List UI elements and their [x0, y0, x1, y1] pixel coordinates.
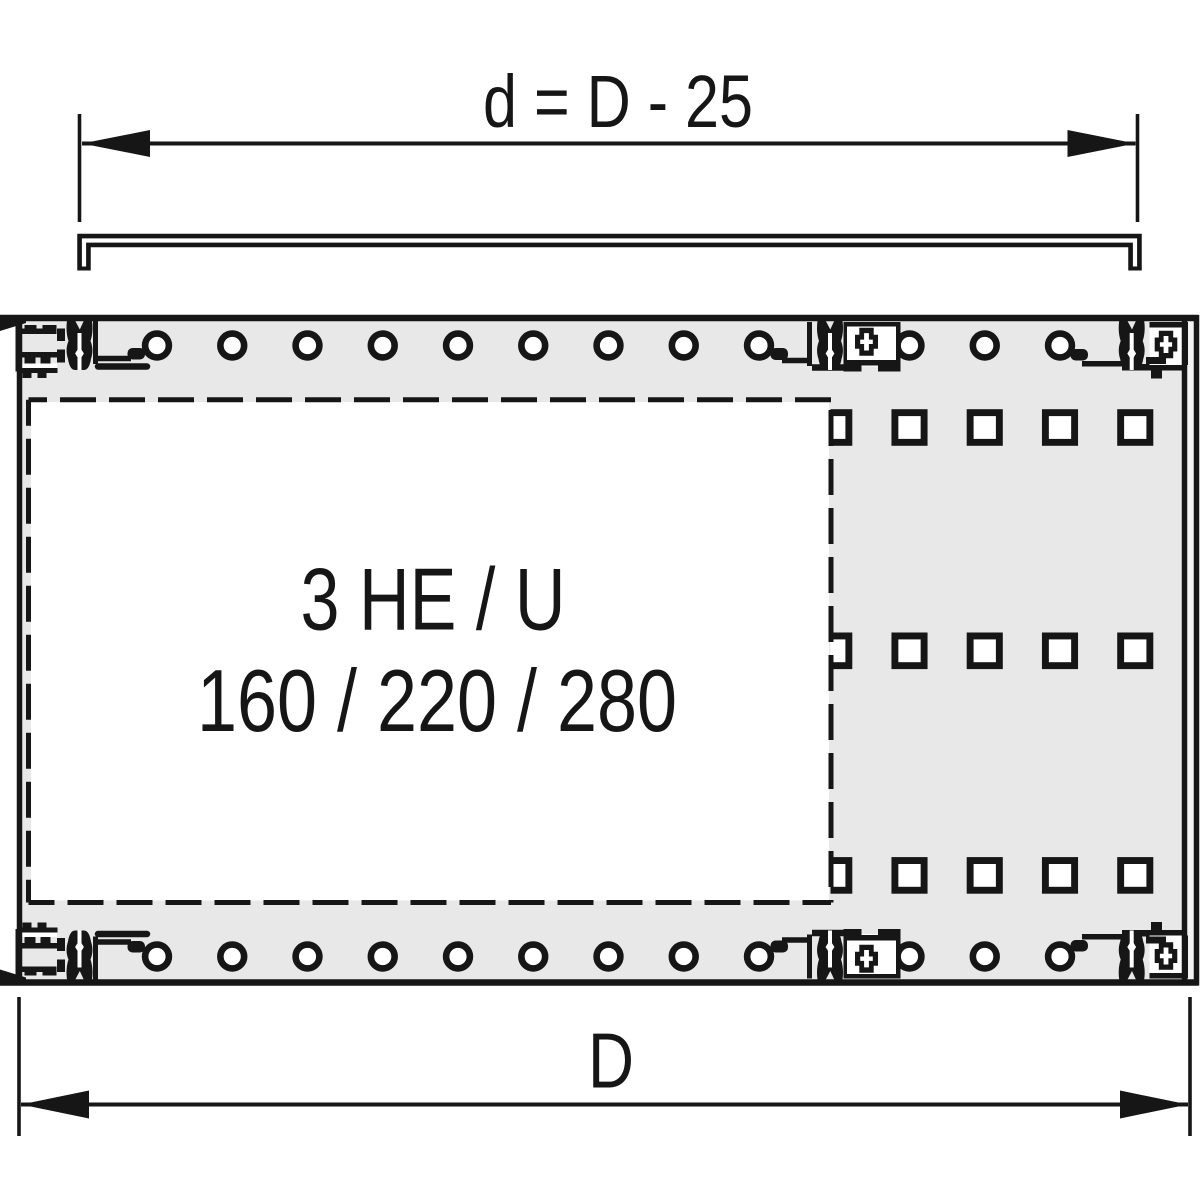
svg-text:d = D - 25: d = D - 25 — [483, 60, 753, 143]
svg-text:160 / 220 / 280: 160 / 220 / 280 — [197, 651, 677, 750]
svg-text:D: D — [588, 1017, 634, 1105]
svg-text:3 HE / U: 3 HE / U — [301, 550, 566, 649]
